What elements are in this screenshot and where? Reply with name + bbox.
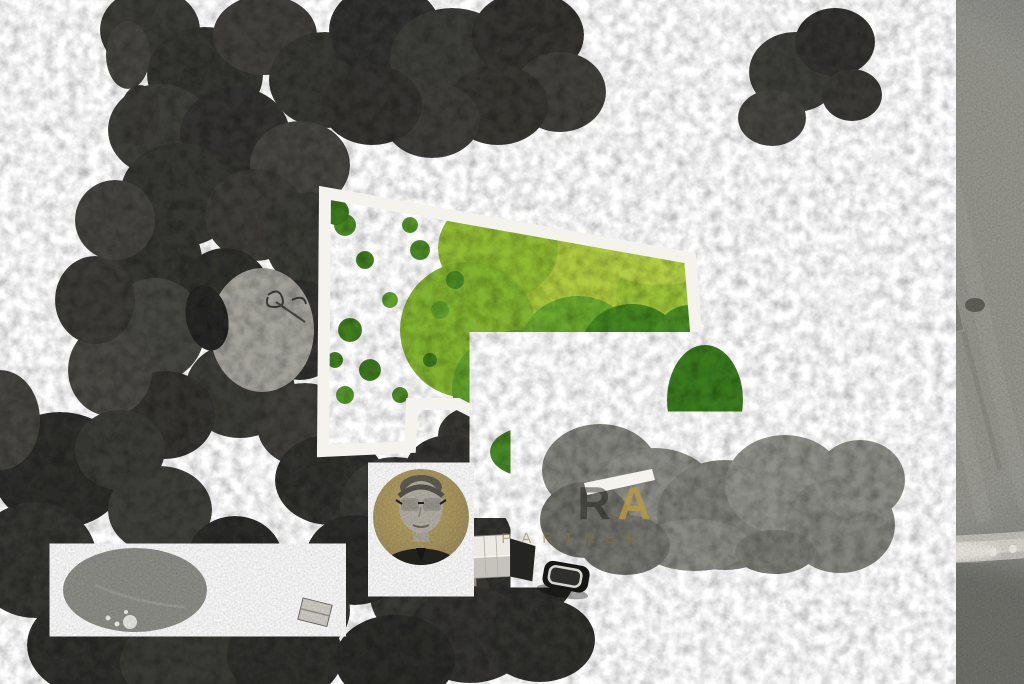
round-pool: [869, 126, 903, 160]
watermark-subtitle: PARTNER: [501, 530, 648, 547]
aerial-photo: R A PARTNER: [0, 0, 1024, 684]
watermark-letter-dark: R: [577, 477, 610, 529]
shed-small: [7, 222, 39, 246]
garden-table: [123, 615, 137, 629]
aerial-photo-canvas: R A PARTNER: [0, 0, 1024, 684]
watermark-letter-gold: A: [617, 477, 650, 529]
